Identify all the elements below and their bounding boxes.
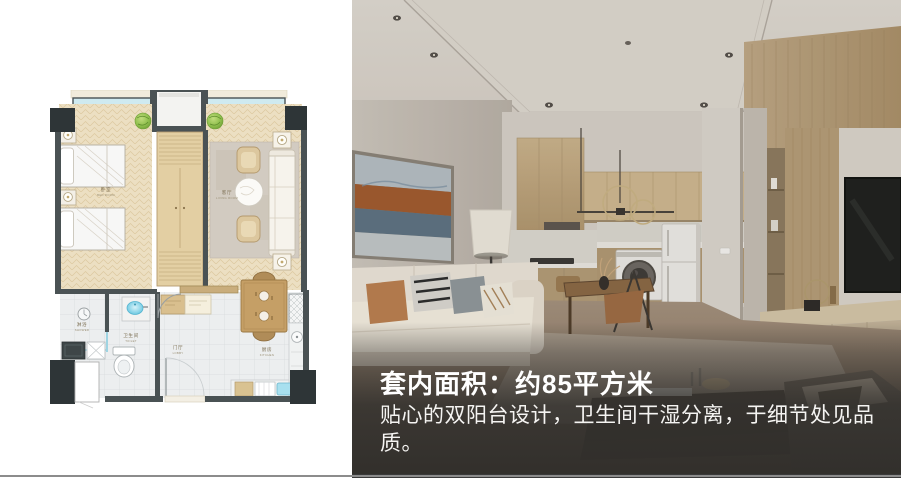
label-bedroom-zh: 卧室 — [101, 186, 111, 193]
label-bedroom-en: BED ROOM — [97, 193, 115, 197]
wardrobe — [157, 132, 203, 286]
caption-overlay: 套内面积：约85平方米 贴心的双阳台设计，卫生间干湿分离，于细节处见品质。 — [352, 322, 901, 474]
interior-photo: 套内面积：约85平方米 贴心的双阳台设计，卫生间干湿分离，于细节处见品质。 — [352, 0, 901, 474]
label-living-en: LIVING ROOM — [216, 196, 238, 200]
label-toilet-zh: 卫生间 — [123, 332, 139, 339]
side-door — [75, 362, 99, 408]
floor-plan-drawing: 卧室 BED ROOM 客厅 LIVING ROOM 淋浴 SHOWER 卫生间… — [45, 90, 320, 410]
floor-plan: 卧室 BED ROOM 客厅 LIVING ROOM 淋浴 SHOWER 卫生间… — [45, 90, 320, 410]
label-shower-en: SHOWER — [75, 328, 89, 332]
area-description: 贴心的双阳台设计，卫生间干湿分离，于细节处见品质。 — [380, 402, 885, 458]
label-kitchen-en: KITCHEN — [260, 353, 274, 357]
label-lobby-zh: 门厅 — [173, 344, 183, 351]
area-title: 套内面积：约85平方米 — [380, 364, 654, 401]
label-lobby-en: LOBBY — [173, 351, 184, 355]
slide-bottom-edge — [0, 475, 901, 477]
balcony-bay — [150, 90, 208, 132]
label-living-zh: 客厅 — [222, 189, 232, 196]
label-shower-zh: 淋浴 — [77, 321, 87, 328]
label-kitchen-zh: 厨房 — [262, 346, 272, 353]
living-room-furniture — [210, 132, 299, 270]
label-toilet-en: TOILET — [125, 339, 137, 343]
presentation-slide: 卧室 BED ROOM 客厅 LIVING ROOM 淋浴 SHOWER 卫生间… — [0, 0, 901, 480]
